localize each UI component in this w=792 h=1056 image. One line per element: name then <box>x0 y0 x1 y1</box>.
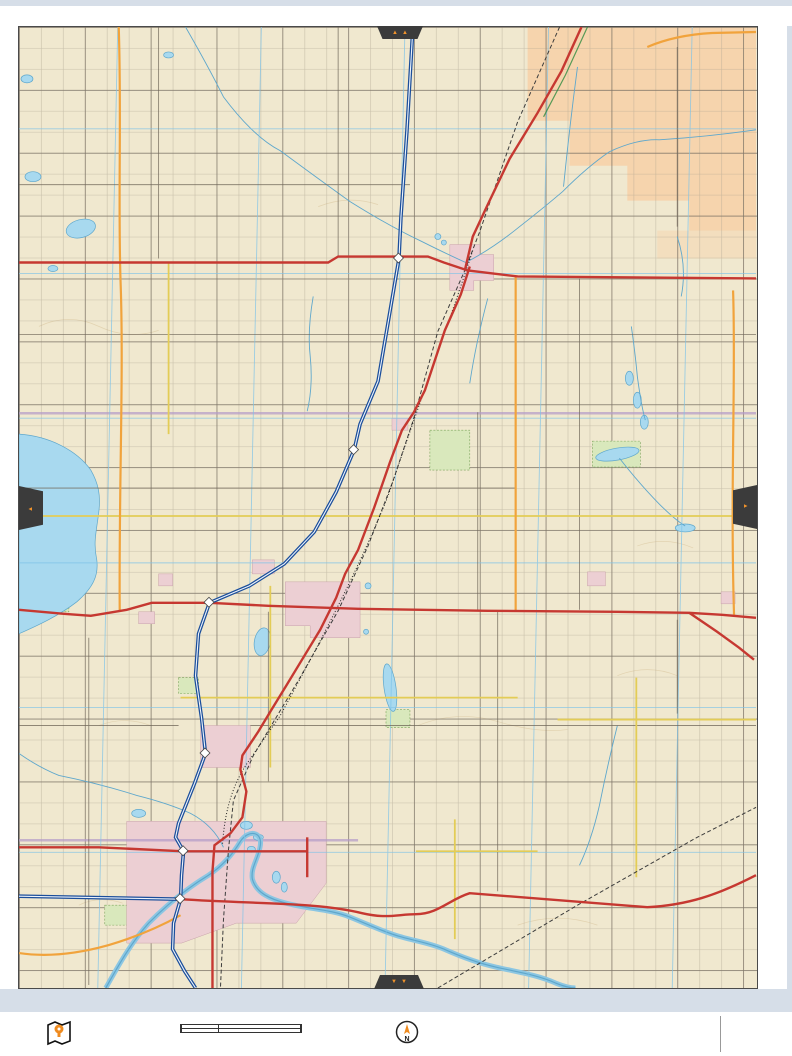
adjacent-map-arrow-east[interactable]: ▲ <box>733 485 757 529</box>
arrow-down-icon: ▼ <box>391 979 397 985</box>
north-compass-icon: N <box>395 1020 419 1044</box>
adjacent-map-arrow-west[interactable]: ▲ <box>19 486 43 530</box>
arrow-right-icon: ▲ <box>742 503 748 509</box>
adjacent-map-arrow-north[interactable]: ▲ ▲ <box>377 26 423 39</box>
scale-bar <box>180 1024 302 1033</box>
adjacent-map-arrow-south[interactable]: ▼ ▼ <box>374 975 424 989</box>
arrow-up-icon: ▲ <box>402 30 408 36</box>
map-with-pin-icon <box>46 1018 72 1048</box>
arrow-left-icon: ▲ <box>28 506 34 512</box>
page-footer: N <box>0 1012 792 1056</box>
title-divider <box>720 1016 721 1052</box>
topographic-map[interactable] <box>18 26 758 989</box>
top-coordinate-bar <box>0 0 792 26</box>
map-canvas <box>19 27 757 988</box>
scale-bar-rail <box>182 1028 300 1029</box>
map-page: ▲ ▲ ▼ ▼ ▲ ▲ <box>0 0 792 1056</box>
right-edge-band <box>787 26 792 989</box>
arrow-up-icon: ▲ <box>392 30 398 36</box>
bottom-coordinate-bar <box>0 988 792 1012</box>
svg-text:N: N <box>404 1036 409 1043</box>
scale-bar-zero-tick <box>218 1025 219 1032</box>
arrow-down-icon: ▼ <box>401 979 407 985</box>
